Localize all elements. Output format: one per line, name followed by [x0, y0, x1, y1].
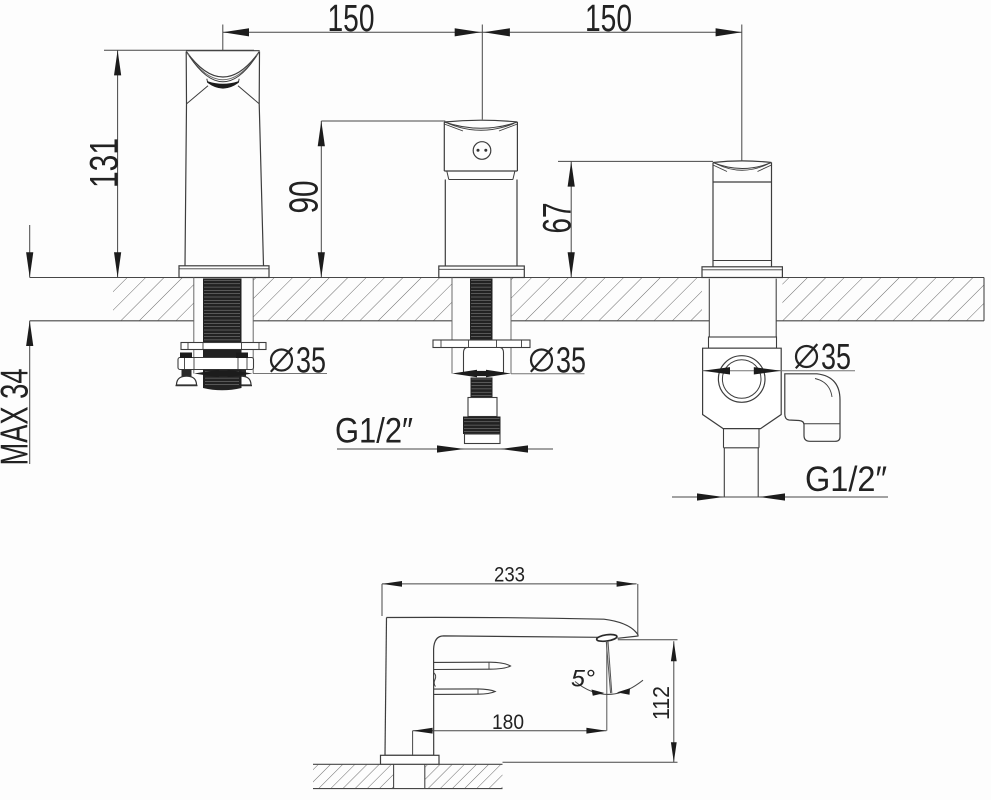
svg-text:112: 112 — [648, 686, 674, 720]
svg-text:35: 35 — [296, 339, 326, 380]
svg-text:150: 150 — [328, 0, 375, 40]
svg-text:131: 131 — [83, 138, 127, 188]
svg-text:90: 90 — [281, 181, 327, 214]
svg-text:G1/2″: G1/2″ — [335, 411, 413, 451]
svg-text:35: 35 — [556, 339, 586, 380]
svg-text:150: 150 — [585, 0, 632, 40]
svg-text:233: 233 — [494, 563, 525, 587]
svg-text:180: 180 — [492, 710, 524, 734]
svg-text:35: 35 — [821, 336, 851, 377]
svg-text:MAX 34: MAX 34 — [0, 369, 37, 466]
svg-text:G1/2″: G1/2″ — [805, 459, 887, 499]
svg-text:67: 67 — [536, 203, 580, 234]
svg-text:5°: 5° — [571, 666, 595, 693]
